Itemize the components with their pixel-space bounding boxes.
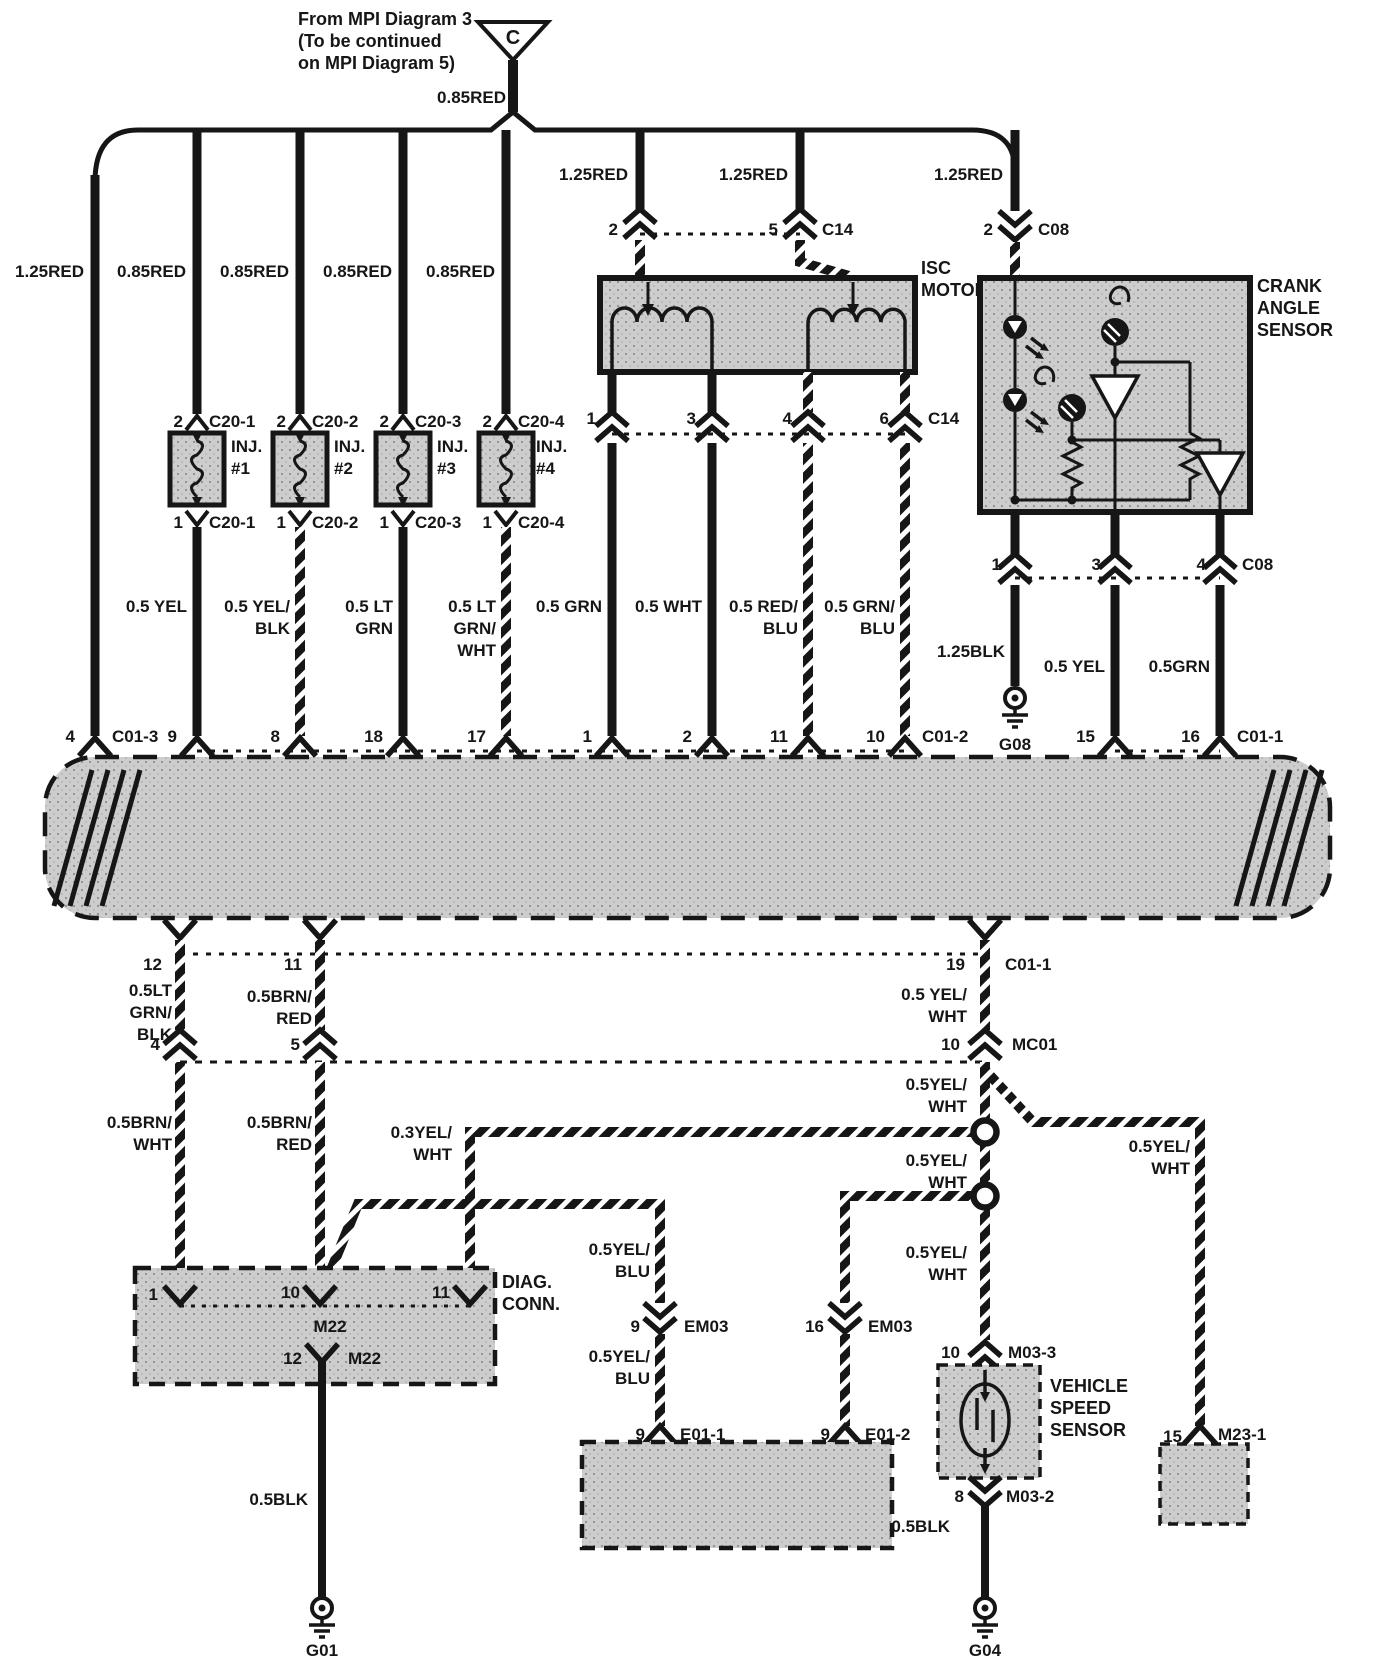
- junction-dot: [1068, 436, 1077, 445]
- component-name: INJ.: [536, 437, 567, 456]
- pin-number: 1: [149, 1285, 158, 1304]
- c20-connector-icon: [289, 511, 311, 525]
- injector-2: 2 C20-2 INJ. #2 1 C20-2: [273, 412, 365, 532]
- component-number: #3: [437, 459, 456, 478]
- pin-number: 10: [866, 727, 885, 746]
- wire-label: 0.3YEL/: [391, 1123, 453, 1142]
- ecu-pin-icon: [1099, 738, 1131, 756]
- component-number: #1: [231, 459, 250, 478]
- ecu-pin-icon: [284, 738, 316, 756]
- wire-label: GRN: [355, 619, 393, 638]
- pin-number: 19: [946, 955, 965, 974]
- injector-3: 2 C20-3 INJ. #3 1 C20-3: [376, 412, 468, 532]
- wire-label: 0.5 LT: [448, 597, 496, 616]
- junction-dot: [1011, 496, 1020, 505]
- wire-label: 0.5BLK: [891, 1517, 950, 1536]
- wire-label: WHT: [1151, 1159, 1190, 1178]
- pin-number: 2: [683, 727, 692, 746]
- ground-symbol-g08: [1002, 688, 1028, 727]
- wire-label: GRN/: [130, 1003, 173, 1022]
- c14-out-connector-icon: [889, 412, 921, 441]
- header-note-line1: From MPI Diagram 3: [298, 9, 472, 29]
- wire-label: 0.5YEL/: [906, 1243, 968, 1262]
- pin-number: 10: [941, 1343, 960, 1362]
- wire-label: 0.5 RED/: [729, 597, 798, 616]
- isc-motor-title: ISC: [921, 258, 951, 278]
- wire-label: 1.25BLK: [937, 642, 1006, 661]
- vss-title: SPEED: [1050, 1398, 1111, 1418]
- pin-number: 8: [955, 1487, 964, 1506]
- wire-label: RED: [276, 1009, 312, 1028]
- wire-label: 0.5 YEL/: [901, 985, 967, 1004]
- connector-name: EM03: [868, 1317, 912, 1336]
- pin-number: 16: [805, 1317, 824, 1336]
- pin-number: 9: [168, 727, 177, 746]
- component-number: #4: [536, 459, 555, 478]
- vehicle-speed-sensor-box: [938, 1365, 1040, 1478]
- ecu-pin-icon: [164, 920, 196, 938]
- wire-label: 0.5 GRN/: [824, 597, 895, 616]
- diag-conn-title: CONN.: [502, 1294, 560, 1314]
- vss-title: VEHICLE: [1050, 1376, 1128, 1396]
- ecu-pin-icon: [792, 738, 824, 756]
- ecu-band: [45, 757, 1330, 918]
- wiring-diagram-canvas: From MPI Diagram 3 (To be continued on M…: [0, 0, 1376, 1660]
- wire-label: 0.5 YEL/: [224, 597, 290, 616]
- pin-number: 1: [992, 555, 1001, 574]
- pin-number: 8: [271, 727, 280, 746]
- ground-label: G08: [999, 735, 1031, 754]
- connector-name: C20-2: [312, 412, 358, 431]
- ecu-pin-icon: [79, 738, 111, 756]
- pin-number: 15: [1076, 727, 1095, 746]
- pin-number: 10: [281, 1283, 300, 1302]
- diag-conn-title: DIAG.: [502, 1272, 552, 1292]
- wire-label: BLU: [763, 619, 798, 638]
- ground-symbol-g01: [309, 1598, 335, 1637]
- wire-label: WHT: [928, 1265, 967, 1284]
- pin-number: 12: [283, 1349, 302, 1368]
- junction-dot: [1068, 496, 1077, 505]
- connector-name: C14: [822, 220, 854, 239]
- pin-number: 1: [583, 727, 592, 746]
- power-bus: [95, 112, 1015, 182]
- pin-number: 3: [1092, 555, 1101, 574]
- wire-label: 0.5 YEL: [1044, 657, 1105, 676]
- connector-name: C01-1: [1005, 955, 1051, 974]
- inline-connector-icon: [304, 1030, 336, 1059]
- component-name: INJ.: [231, 437, 262, 456]
- mpi-wiring-diagram-page: From MPI Diagram 3 (To be continued on M…: [0, 0, 1376, 1660]
- pin-number: 4: [783, 409, 793, 428]
- pin-number: 4: [151, 1035, 161, 1054]
- wire-label: 0.5 LT: [345, 597, 393, 616]
- pin-number: 10: [941, 1035, 960, 1054]
- c20-connector-icon: [289, 416, 311, 430]
- wire-label: BLU: [860, 619, 895, 638]
- wire-label: 0.5YEL/: [906, 1075, 968, 1094]
- injector-4: 2 C20-4 INJ. #4 1 C20-4: [479, 412, 567, 532]
- wire-label: 0.5BRN/: [107, 1113, 172, 1132]
- wire-label: 0.5YEL/: [589, 1240, 651, 1259]
- splice-icon: [974, 1185, 997, 1208]
- page-connector-letter: C: [506, 27, 520, 49]
- ecu-pin-icon: [1204, 738, 1236, 756]
- pin-number: 9: [631, 1317, 640, 1336]
- wire-label: RED: [276, 1135, 312, 1154]
- ground-symbol-g04: [972, 1598, 998, 1637]
- wire-label: 0.5BRN/: [247, 987, 312, 1006]
- pin-number: 1: [587, 409, 596, 428]
- vss-title: SENSOR: [1050, 1420, 1126, 1440]
- ecu-pin-icon: [889, 738, 921, 756]
- pin-number: 16: [1181, 727, 1200, 746]
- mc01-connector-icon: [969, 1030, 1001, 1059]
- component-number: #2: [334, 459, 353, 478]
- connector-name: C20-3: [415, 513, 461, 532]
- wire-label: 0.5YEL/: [906, 1151, 968, 1170]
- connector-name: C20-1: [209, 412, 255, 431]
- c14-out-connector-icon: [792, 412, 824, 441]
- wire-label: WHT: [133, 1135, 172, 1154]
- pin-number: 2: [277, 412, 286, 431]
- header-note-line2: (To be continued: [298, 31, 442, 51]
- pin-number: 4: [66, 727, 76, 746]
- component-name: INJ.: [437, 437, 468, 456]
- c20-connector-icon: [186, 416, 208, 430]
- connector-name: C20-4: [518, 412, 565, 431]
- wire-label: 0.5YEL/: [1129, 1137, 1191, 1156]
- wire-label: GRN/: [454, 619, 497, 638]
- splice-icon: [974, 1121, 997, 1144]
- wire-label: WHT: [928, 1173, 967, 1192]
- pin-number: 3: [687, 409, 696, 428]
- wire-label: BLU: [615, 1369, 650, 1388]
- c20-connector-icon: [392, 416, 414, 430]
- pin-number: 1: [380, 513, 389, 532]
- ground-label: G01: [306, 1641, 338, 1660]
- wire-label: 0.5BLK: [249, 1490, 308, 1509]
- c08-pin2-connector-icon: [999, 211, 1031, 240]
- wire-label: WHT: [413, 1145, 452, 1164]
- wire-label: 0.5LT: [129, 981, 173, 1000]
- wire-label: 0.5GRN: [1149, 657, 1210, 676]
- crank-sensor-title: ANGLE: [1257, 298, 1320, 318]
- c20-connector-icon: [186, 511, 208, 525]
- pin-number: 18: [364, 727, 383, 746]
- connector-name: C08: [1242, 555, 1273, 574]
- c14-out-connector-icon: [696, 412, 728, 441]
- ecu-pin-icon: [387, 738, 419, 756]
- pin-number: 1: [277, 513, 286, 532]
- connector-name: C20-3: [415, 412, 461, 431]
- pin-number: 2: [984, 220, 993, 239]
- connector-name: C14: [928, 409, 960, 428]
- pin-number: 5: [769, 220, 778, 239]
- connector-name: C20-4: [518, 513, 565, 532]
- connector-name: C20-2: [312, 513, 358, 532]
- crank-sensor-title: CRANK: [1257, 276, 1322, 296]
- connector-name: EM03: [684, 1317, 728, 1336]
- wire-label: 0.5 GRN: [536, 597, 602, 616]
- e01-component-box: [582, 1442, 892, 1548]
- pin-number: 11: [432, 1283, 450, 1302]
- connector-name: M22: [348, 1349, 381, 1368]
- connector-name: M03-2: [1006, 1487, 1054, 1506]
- ecu-pin-icon: [490, 738, 522, 756]
- connector-name: C01-3: [112, 727, 158, 746]
- pin-number: 11: [284, 955, 302, 974]
- c20-connector-icon: [392, 511, 414, 525]
- wire-label: 1.25RED: [934, 165, 1003, 184]
- pin-number: 11: [770, 727, 788, 746]
- wire-label: 0.85RED: [220, 262, 289, 281]
- junction-dot: [1111, 358, 1120, 367]
- pin-number: 4: [1197, 555, 1207, 574]
- connector-name: M23-1: [1218, 1425, 1266, 1444]
- connector-name: M22: [313, 1317, 346, 1336]
- ecu-pin-icon: [596, 738, 628, 756]
- ecu-pin-icon: [304, 920, 336, 938]
- connector-name: C08: [1038, 220, 1069, 239]
- wire-label: 0.5 WHT: [635, 597, 703, 616]
- wire-label: 1.25RED: [719, 165, 788, 184]
- em03-connector-icon: [644, 1303, 676, 1332]
- wire-label: 0.85RED: [117, 262, 186, 281]
- pin-number: 2: [483, 412, 492, 431]
- wire-label: 0.85RED: [437, 88, 506, 107]
- connector-name: MC01: [1012, 1035, 1057, 1054]
- wire-label: BLK: [255, 619, 291, 638]
- ground-label: G04: [969, 1641, 1002, 1660]
- wire-label: 0.85RED: [323, 262, 392, 281]
- pin-number: 5: [291, 1035, 300, 1054]
- wire-label: 0.5 YEL: [126, 597, 187, 616]
- wire-isc-b-hatched: [800, 240, 853, 277]
- connector-name: C01-1: [1237, 727, 1283, 746]
- injector-1: 2 C20-1 INJ. #1 1 C20-1: [170, 412, 262, 532]
- ecu-pin-icon: [969, 920, 1001, 938]
- pin-number: 17: [467, 727, 486, 746]
- m03-2-connector-icon: [969, 1477, 1001, 1506]
- m23-component-box: [1160, 1444, 1248, 1524]
- pin-number: 2: [609, 220, 618, 239]
- component-name: INJ.: [334, 437, 365, 456]
- ecu-pin-icon: [696, 738, 728, 756]
- wire-label: WHT: [928, 1097, 967, 1116]
- crank-sensor-title: SENSOR: [1257, 320, 1333, 340]
- em03-connector-icon: [829, 1303, 861, 1332]
- c14-out-connector-icon: [596, 412, 628, 441]
- wire-label: 1.25RED: [559, 165, 628, 184]
- pin-number: 1: [174, 513, 183, 532]
- connector-name: C01-2: [922, 727, 968, 746]
- ecu-pin-icon: [181, 738, 213, 756]
- connector-name: M03-3: [1008, 1343, 1056, 1362]
- wire-label: 0.85RED: [426, 262, 495, 281]
- m23-pin-icon: [1184, 1426, 1216, 1444]
- c20-connector-icon: [495, 511, 517, 525]
- pin-number: 1: [483, 513, 492, 532]
- wire-label: WHT: [928, 1007, 967, 1026]
- wire-label: WHT: [457, 641, 496, 660]
- pin-number: 12: [143, 955, 162, 974]
- pin-number: 2: [380, 412, 389, 431]
- wire-label: BLU: [615, 1262, 650, 1281]
- pin-number: 2: [174, 412, 183, 431]
- wire-label: 0.5BRN/: [247, 1113, 312, 1132]
- pin-number: 6: [880, 409, 889, 428]
- c20-connector-icon: [495, 416, 517, 430]
- connector-name: C20-1: [209, 513, 255, 532]
- wire-label: 1.25RED: [15, 262, 84, 281]
- wire-label: 0.5YEL/: [589, 1347, 651, 1366]
- header-note-line3: on MPI Diagram 5): [298, 53, 455, 73]
